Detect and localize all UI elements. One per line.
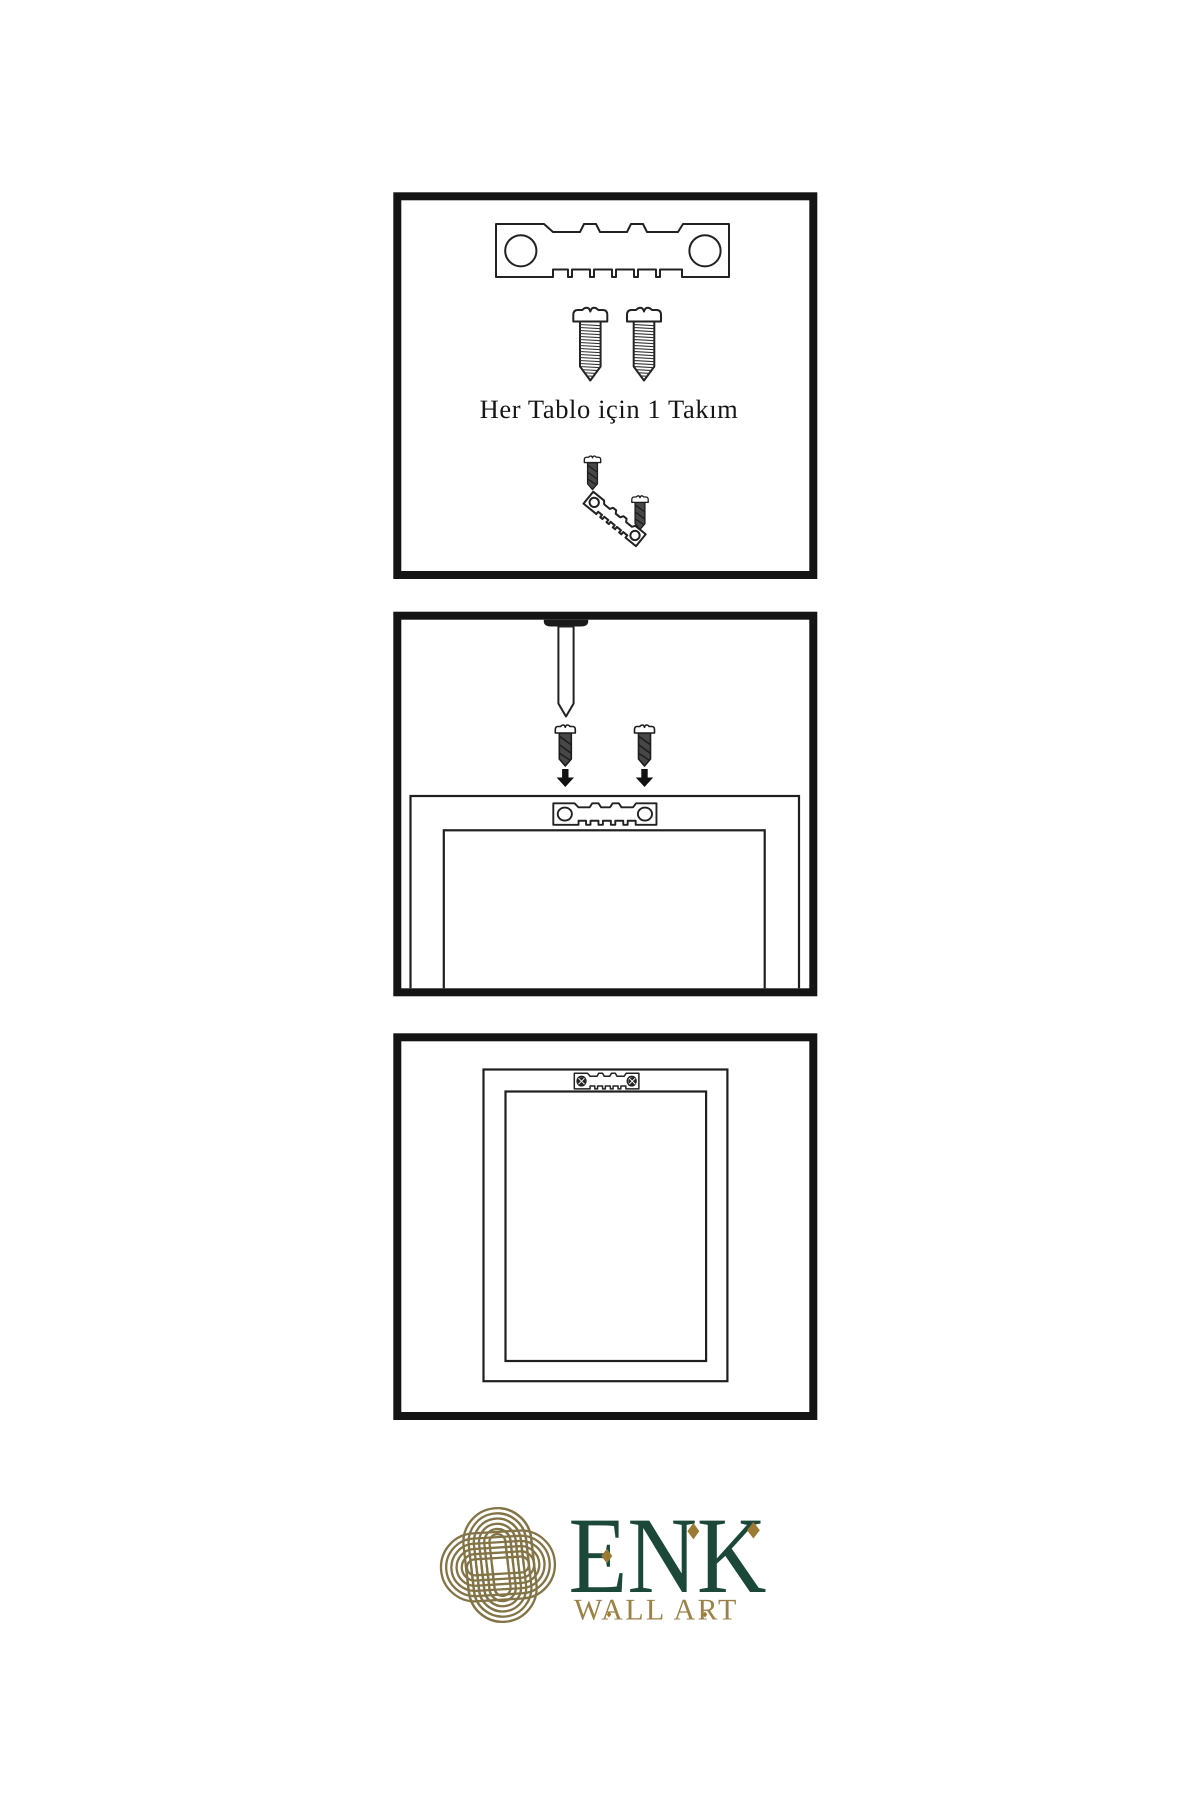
svg-text:Her Tablo için 1 Takım: Her Tablo için 1 Takım [480,394,739,424]
svg-text:WALL ART: WALL ART [574,1594,739,1627]
